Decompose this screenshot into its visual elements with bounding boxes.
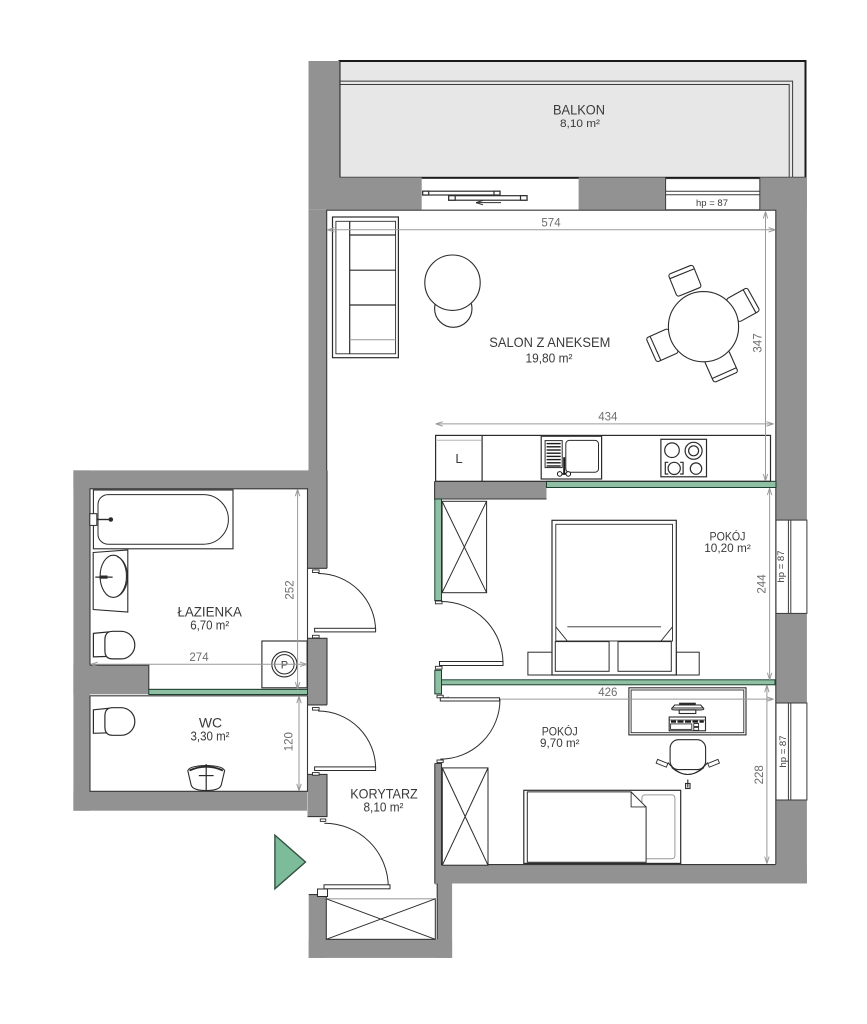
svg-text:3,30 m²: 3,30 m² — [191, 730, 230, 744]
svg-text:274: 274 — [189, 652, 209, 664]
svg-text:347: 347 — [753, 333, 765, 352]
svg-text:BALKON: BALKON — [553, 103, 605, 118]
svg-text:hp = 87: hp = 87 — [696, 198, 728, 209]
svg-text:POKÓJ: POKÓJ — [710, 531, 746, 544]
svg-text:434: 434 — [598, 412, 618, 424]
svg-text:8,10 m²: 8,10 m² — [560, 118, 600, 130]
svg-text:ŁAZIENKA: ŁAZIENKA — [177, 604, 242, 620]
svg-text:574: 574 — [541, 218, 561, 230]
svg-text:6,70 m²: 6,70 m² — [190, 619, 229, 633]
svg-text:P: P — [281, 660, 288, 672]
svg-text:120: 120 — [284, 732, 296, 751]
svg-text:WC: WC — [199, 715, 222, 731]
svg-text:426: 426 — [598, 687, 617, 699]
svg-text:L: L — [455, 451, 462, 466]
svg-text:SALON Z ANEKSEM: SALON Z ANEKSEM — [489, 334, 610, 350]
svg-text:10,20 m²: 10,20 m² — [704, 543, 751, 555]
svg-text:244: 244 — [757, 574, 769, 594]
svg-text:KORYTARZ: KORYTARZ — [350, 786, 418, 802]
svg-text:POKÓJ: POKÓJ — [542, 726, 578, 739]
svg-text:252: 252 — [285, 580, 297, 599]
svg-text:8,10 m²: 8,10 m² — [364, 800, 404, 814]
svg-text:hp = 87: hp = 87 — [776, 551, 787, 583]
svg-text:19,80 m²: 19,80 m² — [526, 352, 573, 366]
svg-text:hp = 87: hp = 87 — [778, 736, 789, 768]
svg-text:9,70 m²: 9,70 m² — [540, 738, 580, 750]
svg-text:228: 228 — [754, 765, 766, 784]
